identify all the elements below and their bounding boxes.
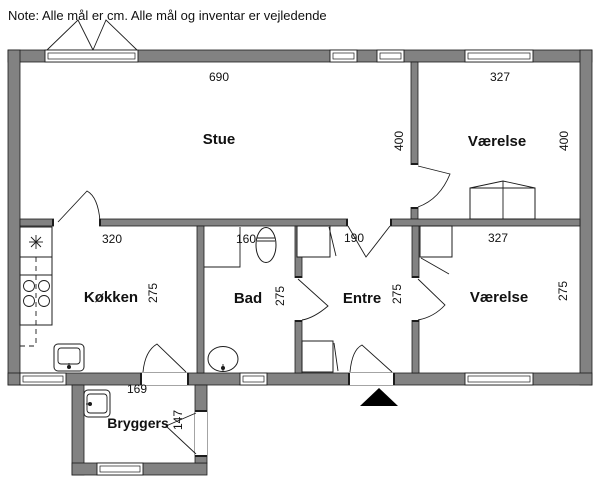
door-kitchen-stue — [58, 191, 100, 222]
bedroom-bottom-fixtures — [420, 226, 452, 274]
dim-vaerelse-top-height: 400 — [557, 131, 571, 151]
dim-vaerelse-top-width: 327 — [490, 70, 510, 84]
room-label-bad: Bad — [234, 290, 262, 307]
door-swings — [58, 166, 450, 454]
fridge-icon — [29, 235, 43, 249]
bryggers-window-icon — [97, 463, 143, 475]
door-entre-bedroom-bottom — [418, 279, 445, 320]
door-stue-bedroom-top — [418, 166, 450, 207]
dim-entre-width: 190 — [344, 231, 364, 245]
dim-vaerelse-bottom-width: 327 — [488, 231, 508, 245]
wardrobe-icon — [470, 181, 535, 219]
terrace-window-icon — [45, 20, 138, 62]
bath-sink-icon — [208, 347, 238, 372]
kitchen-sink-icon — [54, 344, 84, 371]
entrance-marker-icon — [360, 388, 398, 406]
dim-bryggers-width: 169 — [127, 382, 147, 396]
bedroom-top-window-icon — [465, 50, 533, 62]
door-kitchen-bryggers — [143, 344, 186, 372]
dim-stue-height: 400 — [392, 131, 406, 151]
kitchen-fixtures — [20, 227, 84, 371]
room-label-vaerelse-top: Værelse — [468, 133, 526, 150]
dim-bad-height: 275 — [273, 286, 287, 306]
dim-stue-width: 690 — [209, 70, 229, 84]
dim-entre-height: 275 — [390, 284, 404, 304]
dim-bad-width: 160 — [236, 232, 256, 246]
small-window-icon — [330, 50, 357, 62]
bedroom-bottom-window-icon — [465, 373, 533, 385]
shower-icon — [204, 227, 240, 267]
plan-note: Note: Alle mål er cm. Alle mål og invent… — [8, 8, 327, 23]
room-label-entre: Entre — [343, 290, 381, 307]
entrance-opening — [350, 373, 393, 385]
room-label-vaerelse-bottom: Værelse — [470, 289, 528, 306]
room-label-koekken: Køkken — [84, 289, 138, 306]
kitchen-window-icon — [20, 373, 66, 385]
bath-window-icon — [240, 373, 267, 385]
closet-icon — [420, 226, 452, 257]
room-label-stue: Stue — [203, 131, 236, 148]
small-window-icon — [377, 50, 404, 62]
bryggers-fixtures — [84, 390, 110, 417]
toilet-icon — [256, 228, 276, 263]
dim-vaerelse-bottom-height: 275 — [556, 281, 570, 301]
room-label-bryggers: Bryggers — [107, 415, 169, 431]
door-entrance — [350, 345, 392, 372]
floor-plan: Note: Alle mål er cm. Alle mål og invent… — [0, 0, 600, 479]
dim-koekken-width: 320 — [102, 232, 122, 246]
dim-koekken-height: 275 — [146, 283, 160, 303]
closet-icon — [302, 341, 333, 372]
closet-icon — [297, 226, 330, 257]
dim-bryggers-height: 147 — [171, 410, 185, 430]
bryggers-sink-icon — [84, 390, 110, 417]
bedroom-top-fixtures — [470, 181, 535, 219]
floor-plan-drawing: Note: Alle mål er cm. Alle mål og invent… — [0, 0, 600, 479]
